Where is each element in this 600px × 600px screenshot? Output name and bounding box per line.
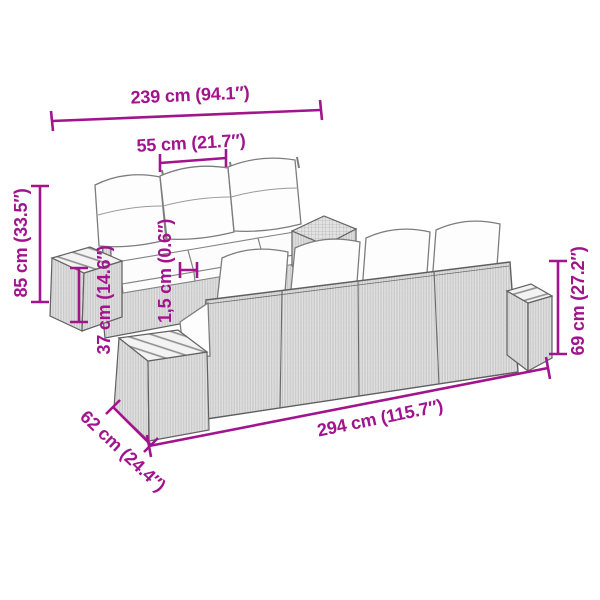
side-table-left	[114, 330, 209, 441]
dimension-label-total-height: 85 cm (33.5″)	[12, 188, 30, 297]
dimension-label-table-height: 37 cm (14.6″)	[95, 245, 113, 354]
back-pillows	[95, 158, 301, 247]
dimension-label-cushion-thickness: 1,5 cm (0.6″)	[156, 219, 174, 323]
dimension-label-back-height: 69 cm (27.2″)	[569, 246, 587, 355]
dimension-diagram: 239 cm (94.1″) 55 cm (21.7″) 85 cm (33.5…	[0, 0, 600, 600]
dimension-label-total-width: 239 cm (94.1″)	[130, 83, 250, 106]
dim-line-total-height	[31, 186, 49, 302]
furniture-illustration	[0, 0, 600, 600]
